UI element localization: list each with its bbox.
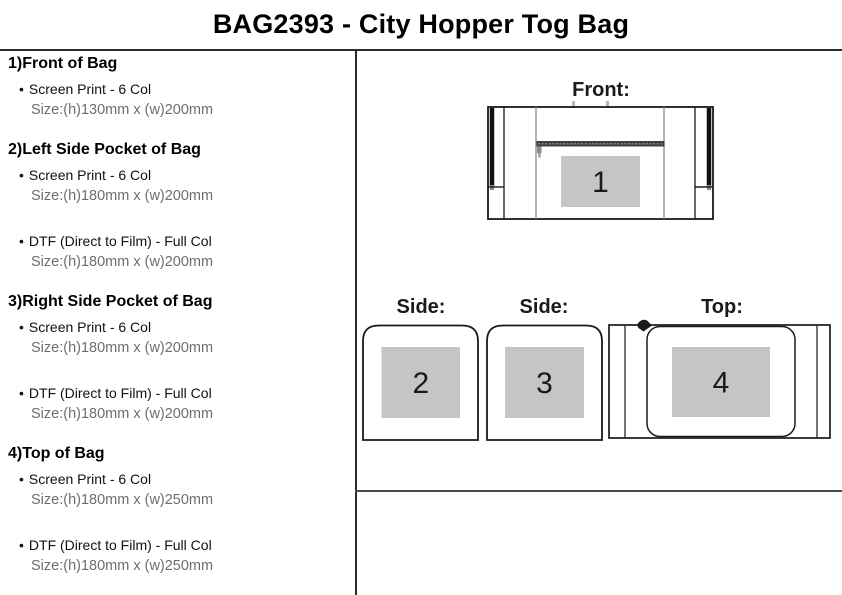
bullet-icon: • [19,165,24,186]
side-left-diagram-label: Side: [361,297,481,318]
print-option: •Screen Print - 6 Col Size:(h)180mm x (w… [19,317,343,359]
print-size: Size:(h)130mm x (w)200mm [19,100,343,121]
print-area-number: 4 [713,367,730,400]
bullet-icon: • [19,79,24,100]
spec-sheet-page: BAG2393 - City Hopper Tog Bag 1)Front of… [0,0,842,595]
handle-stub-icon [572,101,575,107]
spec-heading: 3)Right Side Pocket of Bag [8,293,343,310]
print-area-number: 2 [412,367,429,400]
print-method-label: Screen Print - 6 Col [29,79,151,100]
print-method: •Screen Print - 6 Col [19,317,343,338]
print-method-label: Screen Print - 6 Col [29,165,151,186]
bullet-icon: • [19,383,24,404]
print-size: Size:(h)180mm x (w)250mm [19,490,343,511]
print-option: •DTF (Direct to Film) - Full Col Size:(h… [19,535,343,577]
print-area-number: 1 [592,166,609,199]
vertical-divider-line [355,49,357,595]
print-option: •Screen Print - 6 Col Size:(h)180mm x (w… [19,469,343,511]
top-diagram: 4 [608,317,832,440]
print-method: •Screen Print - 6 Col [19,469,343,490]
print-size: Size:(h)180mm x (w)200mm [19,404,343,425]
bullet-icon: • [19,231,24,252]
print-size: Size:(h)180mm x (w)250mm [19,556,343,577]
print-method-label: DTF (Direct to Film) - Full Col [29,535,212,556]
print-method: •DTF (Direct to Film) - Full Col [19,535,343,556]
print-method: •DTF (Direct to Film) - Full Col [19,231,343,252]
side-left-diagram: 2 [362,324,480,442]
spec-section-left-pocket: 2)Left Side Pocket of Bag •Screen Print … [8,141,343,273]
spec-heading: 2)Left Side Pocket of Bag [8,141,343,158]
spec-section-right-pocket: 3)Right Side Pocket of Bag •Screen Print… [8,293,343,425]
bullet-icon: • [19,535,24,556]
print-method-label: Screen Print - 6 Col [29,469,151,490]
print-area-number: 3 [536,367,553,400]
spec-heading: 4)Top of Bag [8,445,343,462]
horizontal-divider-line [355,490,842,492]
print-option: •DTF (Direct to Film) - Full Col Size:(h… [19,231,343,273]
print-size: Size:(h)180mm x (w)200mm [19,252,343,273]
zipper-pull-icon [538,154,541,158]
print-size: Size:(h)180mm x (w)200mm [19,186,343,207]
print-method: •DTF (Direct to Film) - Full Col [19,383,343,404]
print-method: •Screen Print - 6 Col [19,165,343,186]
print-method: •Screen Print - 6 Col [19,79,343,100]
zipper-pull-icon [537,147,542,154]
print-size: Size:(h)180mm x (w)200mm [19,338,343,359]
spec-section-top: 4)Top of Bag •Screen Print - 6 Col Size:… [8,445,343,577]
side-right-diagram-label: Side: [484,297,604,318]
title-rule-line [0,49,842,51]
print-method-label: DTF (Direct to Film) - Full Col [29,231,212,252]
side-right-diagram: 3 [486,324,604,442]
print-method-label: DTF (Direct to Film) - Full Col [29,383,212,404]
front-diagram: 1 [487,100,714,221]
bullet-icon: • [19,469,24,490]
print-method-label: Screen Print - 6 Col [29,317,151,338]
print-option: •Screen Print - 6 Col Size:(h)130mm x (w… [19,79,343,121]
print-option: •Screen Print - 6 Col Size:(h)180mm x (w… [19,165,343,207]
bullet-icon: • [19,317,24,338]
front-diagram-label: Front: [541,80,661,101]
spec-section-front: 1)Front of Bag •Screen Print - 6 Col Siz… [8,55,343,121]
spec-heading: 1)Front of Bag [8,55,343,72]
top-diagram-label: Top: [662,297,782,318]
handle-stub-icon [606,101,609,107]
page-title: BAG2393 - City Hopper Tog Bag [0,9,842,40]
print-specs-panel: 1)Front of Bag •Screen Print - 6 Col Siz… [8,55,343,595]
print-option: •DTF (Direct to Film) - Full Col Size:(h… [19,383,343,425]
